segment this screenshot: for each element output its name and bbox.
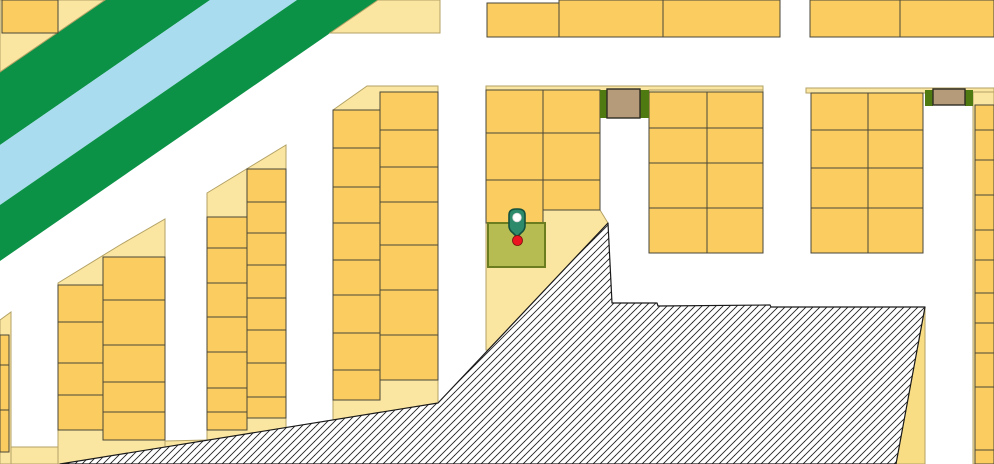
parcel[interactable] <box>975 160 994 195</box>
parcel[interactable] <box>207 412 247 430</box>
parcel[interactable] <box>649 128 707 163</box>
parcel[interactable] <box>247 330 286 363</box>
parcel[interactable] <box>207 317 247 352</box>
parcel[interactable] <box>486 90 543 133</box>
parcel[interactable] <box>207 388 247 412</box>
parcel[interactable] <box>811 130 868 168</box>
landmark-green-strip[interactable] <box>965 90 973 106</box>
parcel[interactable] <box>707 92 763 128</box>
parcel[interactable] <box>868 208 923 253</box>
parcel[interactable] <box>868 168 923 208</box>
parcel[interactable] <box>811 168 868 208</box>
parcel[interactable] <box>486 133 543 180</box>
landmark-green-strip[interactable] <box>600 90 607 118</box>
parcel[interactable] <box>207 352 247 388</box>
parcel[interactable] <box>975 323 994 353</box>
landmark-green-strip[interactable] <box>925 90 933 106</box>
parcel[interactable] <box>247 298 286 330</box>
parcel[interactable] <box>380 202 438 245</box>
parcel[interactable] <box>380 290 438 335</box>
parcel[interactable] <box>649 163 707 208</box>
parcel[interactable] <box>103 412 165 440</box>
parcel[interactable] <box>247 169 286 202</box>
parcel[interactable] <box>975 230 994 260</box>
parcel[interactable] <box>975 450 994 464</box>
map-viewport <box>0 0 994 464</box>
parcel[interactable] <box>58 285 103 322</box>
parcel[interactable] <box>58 322 103 363</box>
parcel[interactable] <box>247 202 286 233</box>
parcel[interactable] <box>0 365 9 410</box>
parcel[interactable] <box>707 128 763 163</box>
parcel[interactable] <box>975 105 994 130</box>
parcel[interactable] <box>207 217 247 248</box>
landmark-building-brown[interactable] <box>933 89 965 105</box>
parcel[interactable] <box>58 363 103 395</box>
parcel[interactable] <box>707 208 763 253</box>
parcel[interactable] <box>811 208 868 253</box>
marker-pin-highlight <box>513 213 522 222</box>
parcel[interactable] <box>2 0 58 33</box>
cadastral-map <box>0 0 994 464</box>
parcel[interactable] <box>207 248 247 283</box>
landmark-building-brown[interactable] <box>607 89 640 118</box>
parcel[interactable] <box>247 233 286 265</box>
parcel[interactable] <box>58 395 103 430</box>
parcel[interactable] <box>380 92 438 130</box>
parcel[interactable] <box>811 93 868 130</box>
parcel[interactable] <box>333 148 380 187</box>
parcel[interactable] <box>975 260 994 293</box>
parcel[interactable] <box>333 260 380 295</box>
parcel[interactable] <box>333 370 380 400</box>
parcel[interactable] <box>333 333 380 370</box>
parcel[interactable] <box>247 397 286 418</box>
parcel[interactable] <box>868 93 923 130</box>
parcel[interactable] <box>559 0 663 37</box>
parcel[interactable] <box>103 300 165 345</box>
city-block-bottom-sliver-a <box>11 447 58 464</box>
parcel[interactable] <box>333 223 380 260</box>
parcel[interactable] <box>649 92 707 128</box>
parcel[interactable] <box>103 257 165 300</box>
parcel[interactable] <box>380 167 438 202</box>
parcel[interactable] <box>380 335 438 380</box>
parcel[interactable] <box>975 130 994 160</box>
parcel[interactable] <box>543 133 600 180</box>
parcel[interactable] <box>649 208 707 253</box>
parcel[interactable] <box>975 293 994 323</box>
parcel[interactable] <box>707 163 763 208</box>
parcel[interactable] <box>975 387 994 450</box>
parcel[interactable] <box>0 410 9 452</box>
parcel[interactable] <box>975 195 994 230</box>
parcel[interactable] <box>663 0 780 37</box>
parcel[interactable] <box>333 295 380 333</box>
parcel[interactable] <box>543 180 600 210</box>
parcel[interactable] <box>0 335 9 365</box>
parcel[interactable] <box>975 353 994 387</box>
parcel[interactable] <box>103 345 165 382</box>
parcel[interactable] <box>333 187 380 223</box>
parcel[interactable] <box>103 382 165 412</box>
parcel[interactable] <box>247 363 286 397</box>
parcel[interactable] <box>380 245 438 290</box>
parcel[interactable] <box>247 265 286 298</box>
marker-red-dot <box>513 236 523 246</box>
parcel[interactable] <box>543 90 600 133</box>
parcel[interactable] <box>207 283 247 317</box>
parcel[interactable] <box>900 0 994 37</box>
parcel[interactable] <box>380 130 438 167</box>
parcel[interactable] <box>868 130 923 168</box>
parcel[interactable] <box>487 3 559 37</box>
parcel[interactable] <box>333 110 380 148</box>
parcel[interactable] <box>810 0 900 37</box>
landmark-green-strip[interactable] <box>640 90 649 118</box>
